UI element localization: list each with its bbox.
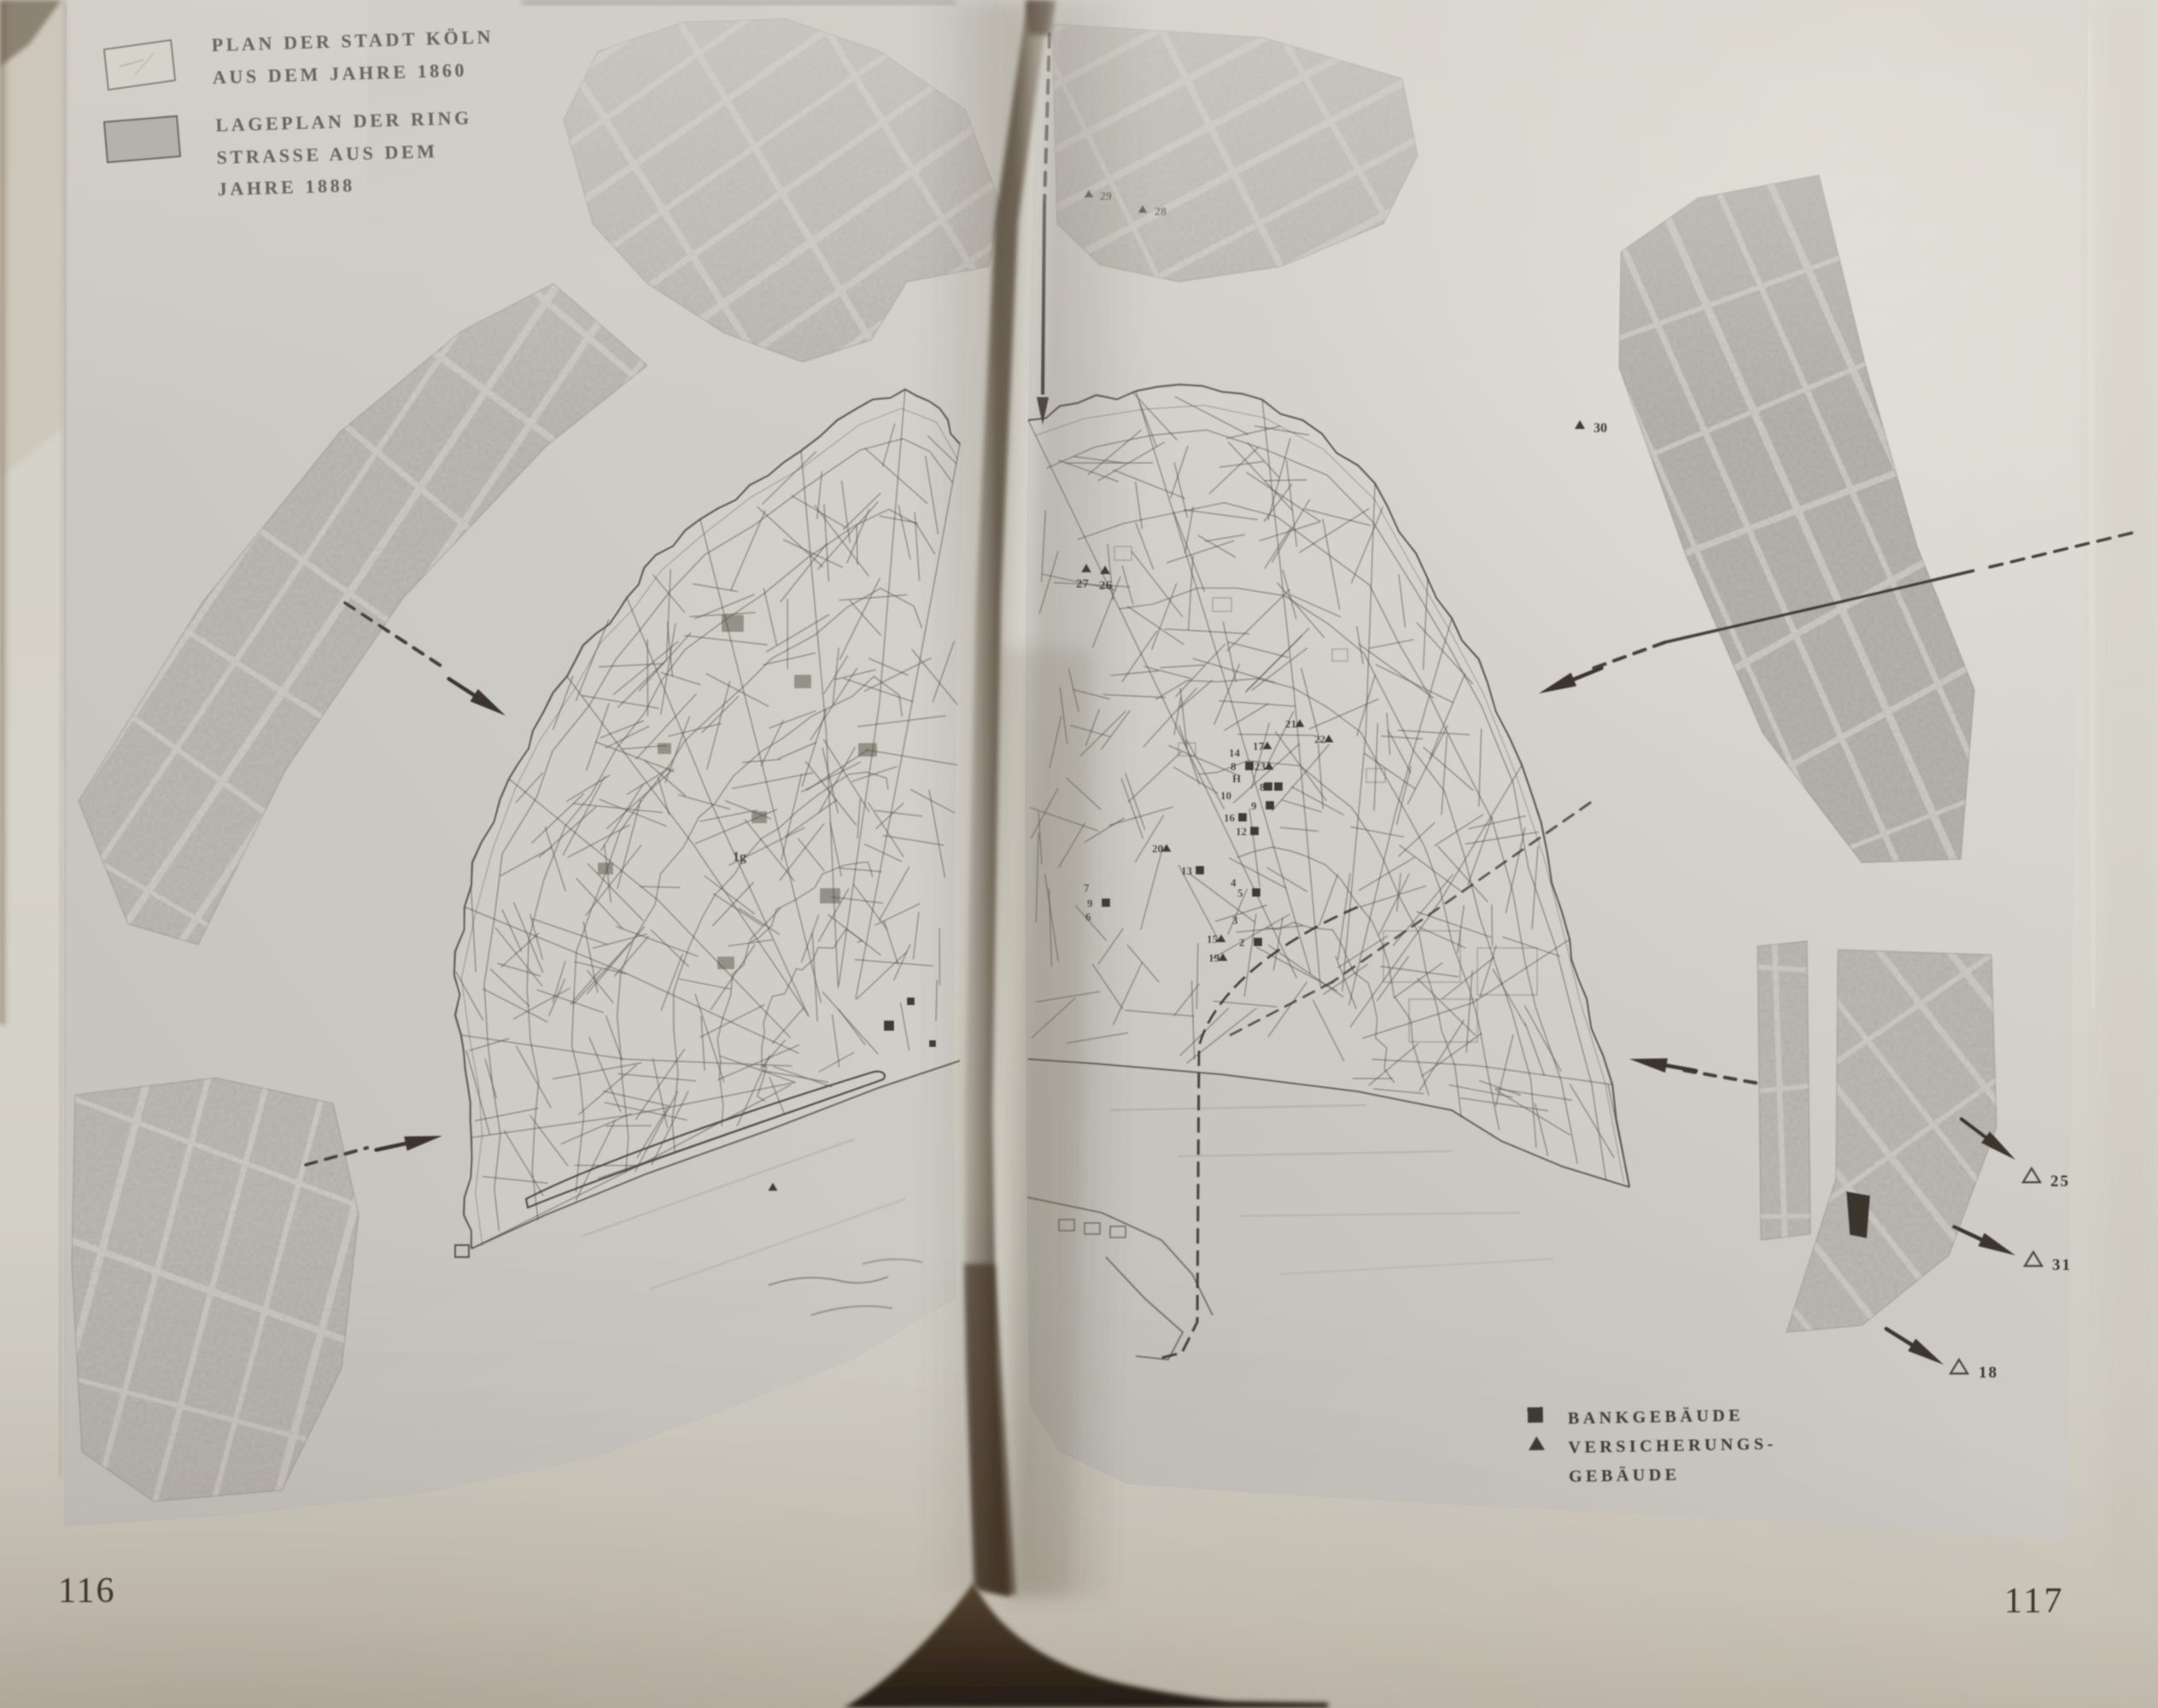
svg-text:17: 17: [1253, 740, 1265, 752]
svg-text:H: H: [1232, 772, 1241, 785]
svg-text:3: 3: [1232, 914, 1238, 927]
svg-text:15: 15: [1207, 933, 1219, 945]
svg-text:4: 4: [1231, 876, 1237, 889]
svg-text:9: 9: [1251, 799, 1257, 812]
svg-text:2: 2: [1239, 936, 1245, 949]
svg-text:16: 16: [1224, 811, 1236, 824]
svg-text:10: 10: [1220, 789, 1231, 802]
svg-text:21: 21: [1285, 717, 1296, 730]
svg-text:19: 19: [1208, 951, 1220, 964]
svg-text:8: 8: [1260, 781, 1266, 793]
svg-text:13: 13: [1181, 864, 1193, 877]
svg-text:JAHRE 1888: JAHRE 1888: [217, 174, 355, 200]
svg-text:12: 12: [1236, 825, 1247, 838]
svg-text:8: 8: [1231, 760, 1237, 773]
svg-text:25: 25: [2050, 1173, 2070, 1190]
svg-text:23: 23: [1254, 760, 1266, 773]
svg-text:22: 22: [1314, 733, 1325, 746]
svg-text:5: 5: [1237, 886, 1243, 899]
svg-text:20: 20: [1152, 842, 1163, 855]
svg-text:1g: 1g: [733, 850, 746, 864]
svg-text:14: 14: [1229, 746, 1241, 759]
